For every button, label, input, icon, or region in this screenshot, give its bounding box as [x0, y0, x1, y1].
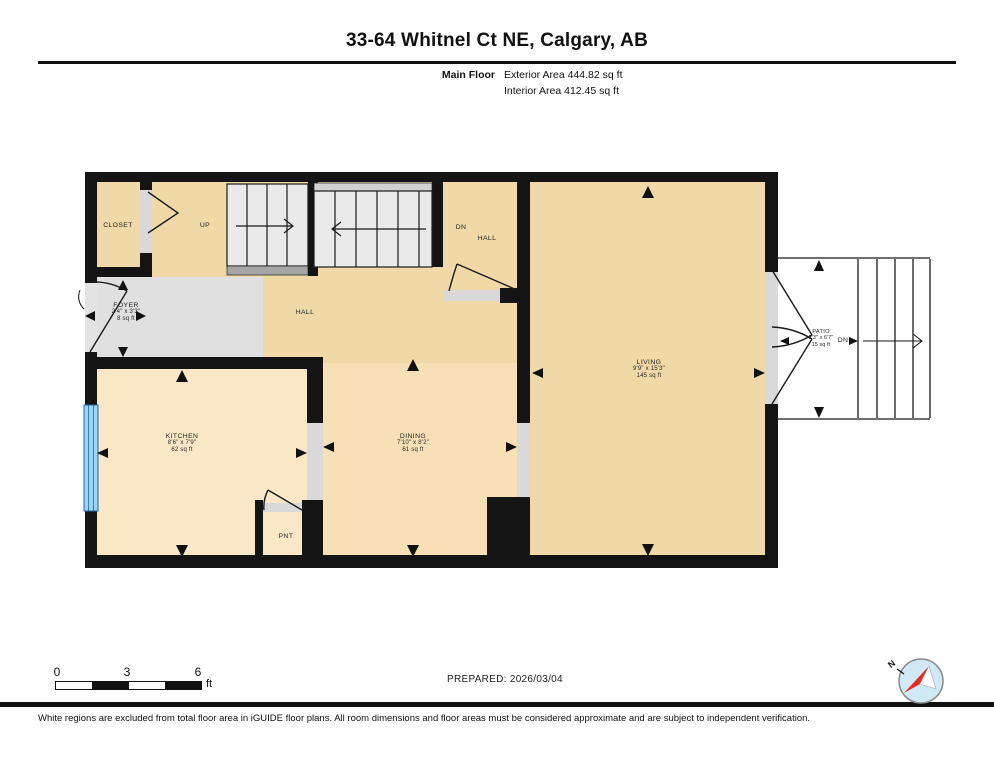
- wall: [517, 182, 530, 423]
- wall: [85, 172, 778, 182]
- page-title: 33-64 Whitnel Ct NE, Calgary, AB: [0, 30, 994, 52]
- scale-tick-3: 3: [124, 665, 131, 679]
- wall: [85, 182, 97, 568]
- wall: [140, 182, 152, 190]
- hall-label: HALL: [296, 309, 315, 316]
- wall: [308, 182, 318, 276]
- compass-needle-white: [920, 666, 936, 689]
- patio-french-doors: [772, 270, 812, 404]
- living-label: LIVING 9'9" x 15'3" 145 sq ft: [633, 359, 665, 380]
- wall: [85, 267, 152, 277]
- wall: [307, 357, 323, 423]
- wall: [255, 500, 263, 568]
- dn-hall-label: HALL: [478, 235, 497, 242]
- wall: [765, 182, 778, 272]
- closet-door-opening: [140, 190, 152, 253]
- pantry-door-opening: [263, 503, 302, 512]
- compass-north-label: N: [886, 658, 897, 670]
- pantry-label: PNT: [279, 533, 294, 540]
- wall: [85, 357, 323, 369]
- hall-door-opening: [443, 290, 500, 301]
- entry-door-opening: [85, 283, 97, 352]
- patio-label: PATIO 2'3" x 6'7" 15 sq ft: [809, 329, 834, 348]
- wall: [765, 404, 778, 568]
- wall: [500, 288, 517, 303]
- floorplan-page: { "header": { "title": "33-64 Whitnel Ct…: [0, 0, 994, 768]
- patio-stairs-dn: [778, 258, 930, 419]
- scale-tick-0: 0: [54, 665, 61, 679]
- header-divider: [38, 61, 956, 64]
- dining-label: DINING 7'10" x 8'2" 61 sq ft: [397, 433, 429, 454]
- scale-unit: ft: [206, 678, 212, 690]
- kitchen-dining-opening: [307, 423, 323, 500]
- floor-label: Main Floor: [377, 69, 495, 81]
- patio-dn-label: DN: [838, 337, 849, 344]
- prepared-date: PREPARED: 2026/03/04: [447, 674, 563, 685]
- wall: [432, 182, 443, 267]
- closet-label: CLOSET: [103, 222, 133, 229]
- interior-area: Interior Area 412.45 sq ft: [504, 85, 619, 97]
- kitchen-label: KITCHEN 8'6" x 7'9" 62 sq ft: [166, 433, 199, 454]
- patio-door-opening: [765, 272, 778, 404]
- scale-tick-6: 6: [195, 665, 202, 679]
- foyer-label: FOYER 2'4" x 3'3" 8 sq ft: [112, 302, 140, 323]
- compass-needle-red: [904, 666, 929, 693]
- exterior-area: Exterior Area 444.82 sq ft: [504, 69, 622, 81]
- wall: [487, 497, 530, 555]
- disclaimer-text: White regions are excluded from total fl…: [38, 713, 810, 724]
- wall: [302, 500, 323, 568]
- dining-living-opening: [517, 423, 530, 497]
- dn-label: DN: [456, 224, 467, 231]
- wall: [85, 555, 778, 568]
- footer-divider: [0, 702, 994, 707]
- compass: N: [886, 658, 943, 703]
- stairs-up-label: UP: [200, 222, 210, 229]
- scale-bar: [55, 681, 202, 690]
